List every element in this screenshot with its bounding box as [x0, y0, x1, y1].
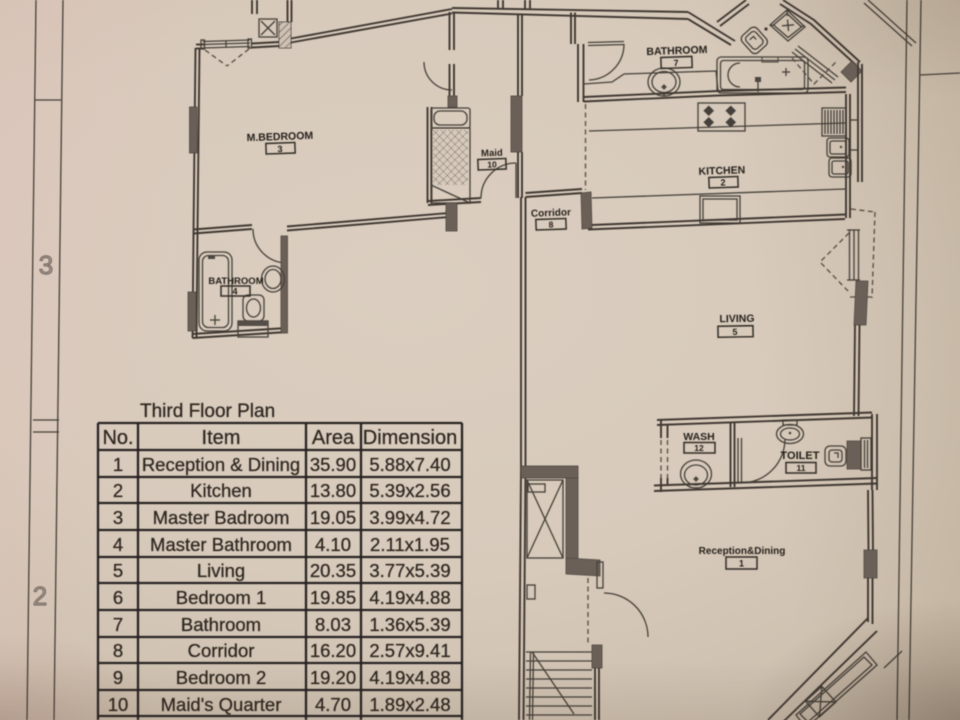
svg-text:7: 7: [673, 58, 678, 68]
svg-text:19.20: 19.20: [310, 667, 356, 688]
svg-text:5: 5: [732, 327, 737, 337]
svg-text:20.35: 20.35: [310, 560, 356, 581]
svg-text:10: 10: [108, 694, 129, 715]
svg-text:1.36x5.39: 1.36x5.39: [369, 614, 450, 635]
svg-text:13.80: 13.80: [310, 480, 356, 501]
svg-text:4: 4: [232, 287, 237, 297]
svg-text:BATHROOM: BATHROOM: [646, 44, 708, 58]
svg-text:8: 8: [113, 640, 123, 661]
svg-text:1.89x2.48: 1.89x2.48: [369, 694, 450, 715]
svg-text:Bedroom 2: Bedroom 2: [176, 667, 267, 688]
svg-text:4.10: 4.10: [315, 534, 351, 555]
svg-text:Third Floor Plan: Third Floor Plan: [140, 401, 275, 422]
svg-text:5: 5: [113, 560, 123, 581]
svg-text:2: 2: [33, 581, 47, 611]
svg-text:19.85: 19.85: [310, 587, 356, 608]
svg-text:1: 1: [113, 454, 123, 475]
svg-text:19.05: 19.05: [310, 507, 356, 528]
svg-text:3: 3: [113, 507, 123, 528]
svg-text:2.57x9.41: 2.57x9.41: [369, 640, 450, 661]
svg-text:Reception&Dining: Reception&Dining: [699, 546, 786, 557]
svg-text:Master Badroom: Master Badroom: [153, 507, 290, 528]
svg-text:12: 12: [694, 443, 704, 453]
svg-text:WASH: WASH: [683, 431, 715, 443]
svg-text:6: 6: [113, 587, 123, 608]
svg-text:11: 11: [797, 463, 806, 473]
svg-text:2: 2: [720, 177, 725, 187]
svg-text:4.19x4.88: 4.19x4.88: [369, 587, 450, 608]
svg-text:7: 7: [113, 614, 123, 635]
svg-text:8.03: 8.03: [315, 614, 351, 635]
svg-text:TOILET: TOILET: [781, 450, 820, 462]
svg-text:Bedroom 1: Bedroom 1: [176, 587, 267, 608]
svg-text:5.88x7.40: 5.88x7.40: [369, 454, 450, 475]
svg-text:M.BEDROOM: M.BEDROOM: [246, 130, 313, 144]
svg-text:1: 1: [739, 559, 744, 569]
svg-text:Item: Item: [202, 427, 241, 449]
svg-text:Maid's Quarter: Maid's Quarter: [161, 694, 282, 715]
svg-text:2.11x1.95: 2.11x1.95: [370, 534, 450, 555]
svg-text:Maid: Maid: [481, 148, 503, 160]
svg-text:5.39x2.56: 5.39x2.56: [369, 480, 450, 501]
svg-text:3: 3: [277, 144, 282, 154]
svg-text:Dimension: Dimension: [363, 427, 457, 449]
svg-text:4: 4: [113, 534, 123, 555]
svg-text:Corridor: Corridor: [188, 640, 255, 661]
svg-text:4.70: 4.70: [315, 694, 351, 715]
svg-text:No.: No.: [102, 427, 133, 449]
svg-text:9: 9: [113, 667, 123, 688]
svg-text:10: 10: [487, 159, 497, 169]
svg-text:3.99x4.72: 3.99x4.72: [369, 507, 450, 528]
svg-text:LIVING: LIVING: [719, 313, 754, 326]
svg-text:3.77x5.39: 3.77x5.39: [369, 560, 450, 581]
svg-text:Living: Living: [197, 560, 245, 581]
svg-text:2: 2: [113, 480, 123, 501]
svg-text:Reception & Dining: Reception & Dining: [142, 454, 300, 475]
svg-text:Master Bathroom: Master Bathroom: [150, 534, 292, 555]
svg-text:35.90: 35.90: [310, 454, 356, 475]
svg-text:Area: Area: [312, 427, 355, 449]
svg-text:4.19x4.88: 4.19x4.88: [369, 667, 450, 688]
svg-text:3: 3: [39, 250, 53, 280]
svg-text:16.20: 16.20: [310, 640, 356, 661]
svg-text:Bathroom: Bathroom: [181, 614, 261, 635]
svg-text:Kitchen: Kitchen: [190, 480, 252, 501]
svg-text:8: 8: [548, 219, 553, 229]
